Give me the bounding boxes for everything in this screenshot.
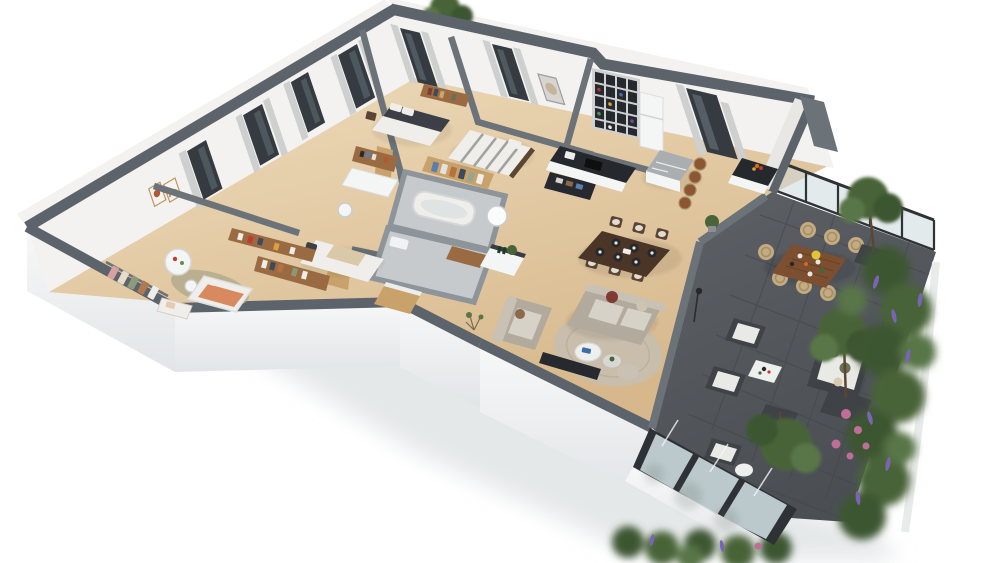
table-plant — [610, 357, 615, 362]
wicker-chair — [824, 229, 840, 245]
flower-vase — [812, 251, 821, 260]
wicker-chair — [758, 244, 774, 260]
beige-pillow — [637, 301, 648, 312]
brown-pillow — [515, 309, 525, 319]
bottle-bookshelf — [592, 68, 640, 139]
beige-pillow — [834, 378, 843, 387]
table-deco — [173, 257, 177, 261]
water-heater — [487, 206, 507, 226]
pouf — [617, 364, 639, 380]
floorplan-scene — [0, 0, 1000, 563]
fridge — [640, 92, 663, 152]
plant-pot — [708, 226, 716, 232]
floorplan-render — [0, 0, 1000, 563]
wicker-chair — [800, 222, 816, 238]
desk-chair — [338, 203, 352, 217]
table-deco — [180, 261, 184, 265]
slab-nursery-front — [175, 302, 400, 372]
wicker-chair — [820, 285, 836, 301]
fridge-front — [640, 92, 663, 152]
side-table — [735, 464, 753, 477]
kids-table — [165, 249, 191, 275]
red-pillow — [606, 291, 618, 303]
